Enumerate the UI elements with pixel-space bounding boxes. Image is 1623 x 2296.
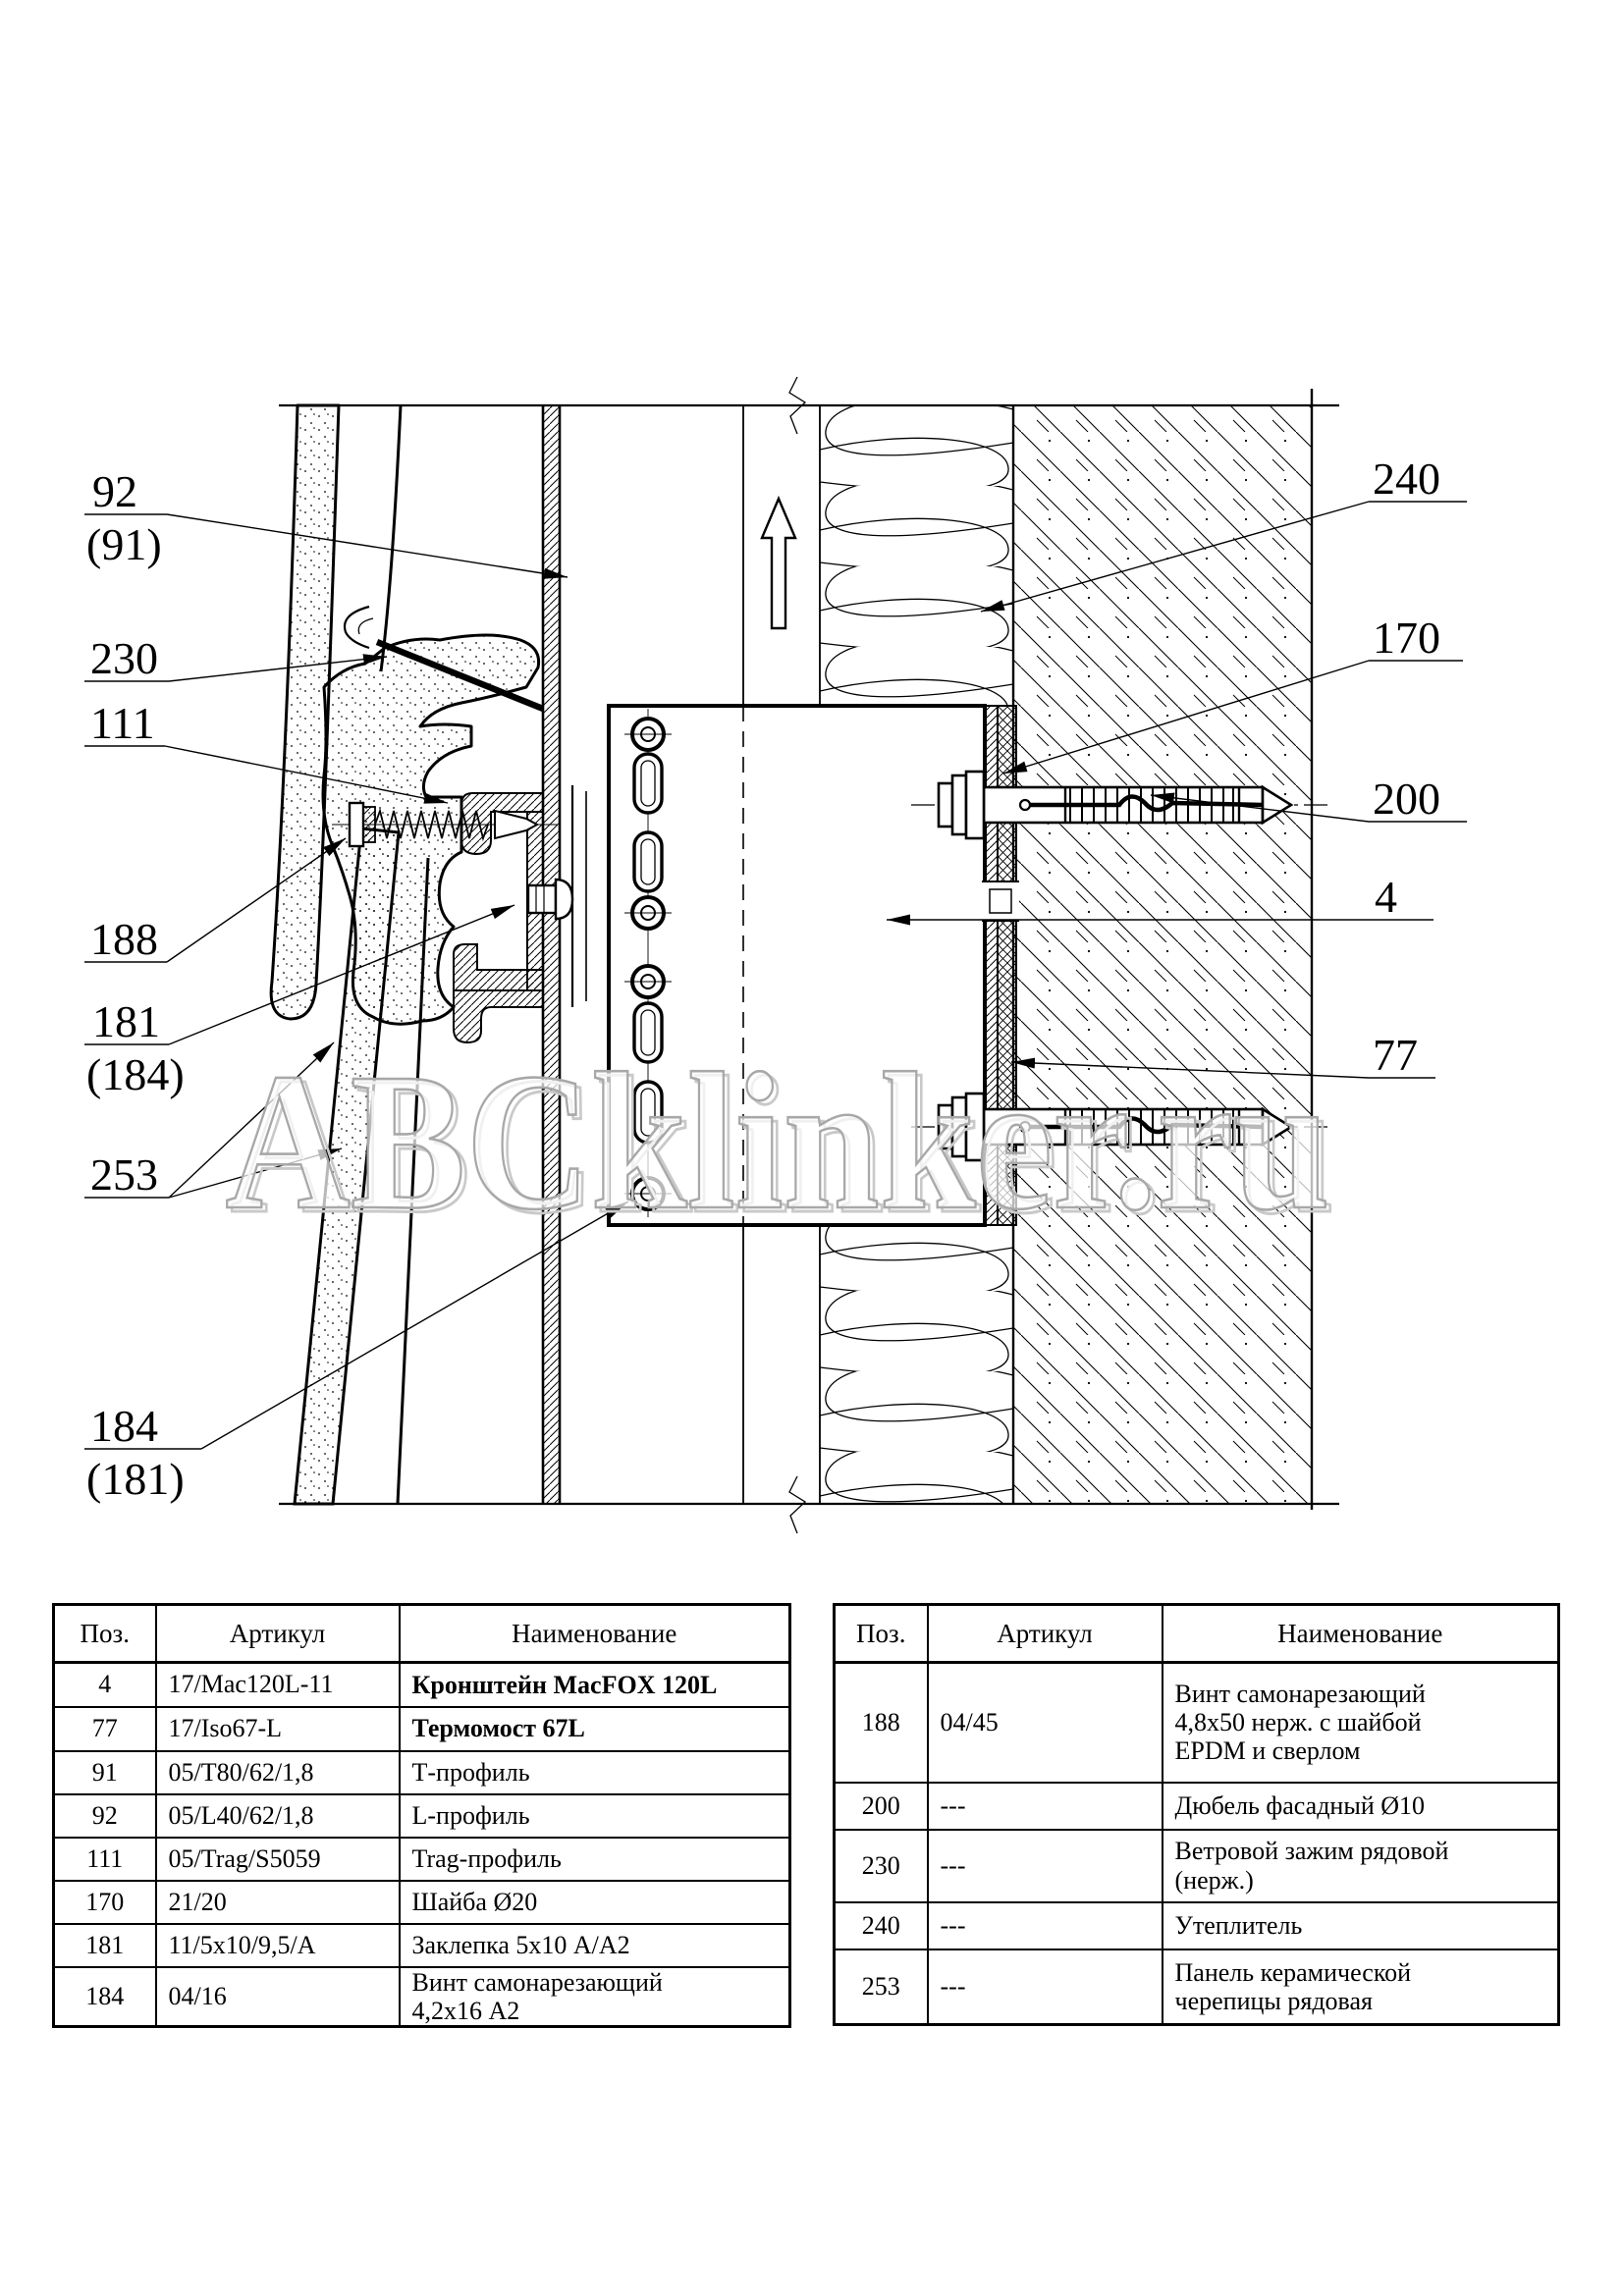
callout-91: (91)	[86, 519, 162, 569]
table-row: 200 --- Дюбель фасадный Ø10	[835, 1783, 1559, 1830]
table-header-art: Артикул	[928, 1605, 1163, 1663]
cell-pos: 181	[54, 1924, 156, 1967]
cell-name: L-профиль	[400, 1794, 790, 1838]
callout-184: 184	[90, 1401, 158, 1451]
drawing-sheet: 92 (91) 230 111 188 181 (184) 253 184 (1…	[0, 0, 1623, 2296]
cell-art: ---	[928, 1783, 1163, 1830]
parts-table-left: Поз. Артикул Наименование 4 17/Mac120L-1…	[52, 1603, 791, 2028]
cell-art: 11/5x10/9,5/A	[156, 1924, 400, 1967]
cell-pos: 184	[54, 1967, 156, 2027]
cell-name: Дюбель фасадный Ø10	[1163, 1783, 1559, 1830]
table-header-name: Наименование	[1163, 1605, 1559, 1663]
cell-name: Утеплитель	[1163, 1902, 1559, 1949]
callout-92: 92	[92, 466, 137, 516]
callout-111: 111	[90, 698, 155, 748]
cell-pos: 253	[835, 1949, 928, 2025]
table-row: 4 17/Mac120L-11 Кронштейн MacFOX 120L	[54, 1663, 790, 1707]
cell-pos: 91	[54, 1751, 156, 1794]
cell-pos: 92	[54, 1794, 156, 1838]
cell-art: 05/Trag/S5059	[156, 1838, 400, 1881]
cell-pos: 188	[835, 1663, 928, 1783]
table-row: 184 04/16 Винт самонарезающий 4,2x16 А2	[54, 1967, 790, 2027]
cell-art: ---	[928, 1830, 1163, 1902]
cell-art: 17/Iso67-L	[156, 1707, 400, 1751]
cell-name: Кронштейн MacFOX 120L	[400, 1663, 790, 1707]
cell-art: 21/20	[156, 1881, 400, 1924]
cell-name: Винт самонарезающий 4,8x50 нерж. с шайбо…	[1163, 1663, 1559, 1783]
watermark: ABCklinker.ru ABCklinker.ru	[226, 1034, 1335, 1255]
callout-170: 170	[1373, 613, 1440, 663]
table-row: 91 05/T80/62/1,8 Т-профиль	[54, 1751, 790, 1794]
table-row: 111 05/Trag/S5059 Trag-профиль	[54, 1838, 790, 1881]
table-row: 240 --- Утеплитель	[835, 1902, 1559, 1949]
table-row: 77 17/Iso67-L Термомост 67L	[54, 1707, 790, 1751]
watermark-text: ABCklinker.ru	[226, 1034, 1330, 1251]
up-arrow-icon	[762, 499, 795, 628]
table-row: 253 --- Панель керамической черепицы ряд…	[835, 1949, 1559, 2025]
cell-name: Панель керамической черепицы рядовая	[1163, 1949, 1559, 2025]
table-row: 188 04/45 Винт самонарезающий 4,8x50 нер…	[835, 1663, 1559, 1783]
cell-art: ---	[928, 1949, 1163, 2025]
cell-pos: 111	[54, 1838, 156, 1881]
cell-pos: 240	[835, 1902, 928, 1949]
table-header-art: Артикул	[156, 1605, 400, 1663]
cell-pos: 170	[54, 1881, 156, 1924]
callout-77: 77	[1373, 1030, 1418, 1080]
cell-name: Trag-профиль	[400, 1838, 790, 1881]
cell-art: 05/T80/62/1,8	[156, 1751, 400, 1794]
table-header-name: Наименование	[400, 1605, 790, 1663]
cell-pos: 200	[835, 1783, 928, 1830]
cell-name: Шайба Ø20	[400, 1881, 790, 1924]
cell-art: 17/Mac120L-11	[156, 1663, 400, 1707]
callout-181-alt: (181)	[86, 1454, 185, 1504]
cell-art: ---	[928, 1902, 1163, 1949]
cell-art: 04/45	[928, 1663, 1163, 1783]
table-row: 181 11/5x10/9,5/A Заклепка 5x10 А/А2	[54, 1924, 790, 1967]
callout-200: 200	[1373, 774, 1440, 824]
cell-pos: 230	[835, 1830, 928, 1902]
callout-184-alt: (184)	[86, 1049, 185, 1099]
table-header-pos: Поз.	[54, 1605, 156, 1663]
cell-name: Заклепка 5x10 А/А2	[400, 1924, 790, 1967]
cell-pos: 77	[54, 1707, 156, 1751]
t-profile-section	[543, 405, 560, 1504]
table-row: 170 21/20 Шайба Ø20	[54, 1881, 790, 1924]
callout-181: 181	[92, 996, 160, 1046]
parts-table-right: Поз. Артикул Наименование 188 04/45 Винт…	[833, 1603, 1560, 2026]
callout-4: 4	[1375, 872, 1397, 922]
rivet	[528, 880, 572, 919]
cell-name: Термомост 67L	[400, 1707, 790, 1751]
cell-art: 05/L40/62/1,8	[156, 1794, 400, 1838]
callout-240: 240	[1373, 454, 1440, 504]
callout-188: 188	[90, 914, 158, 964]
callout-230: 230	[90, 633, 158, 683]
table-header-pos: Поз.	[835, 1605, 928, 1663]
cell-name: Винт самонарезающий 4,2x16 А2	[400, 1967, 790, 2027]
table-row: 92 05/L40/62/1,8 L-профиль	[54, 1794, 790, 1838]
cell-pos: 4	[54, 1663, 156, 1707]
cell-name: Т-профиль	[400, 1751, 790, 1794]
concrete-wall	[1013, 389, 1312, 1510]
cell-art: 04/16	[156, 1967, 400, 2027]
cell-name: Ветровой зажим рядовой (нерж.)	[1163, 1830, 1559, 1902]
table-row: 230 --- Ветровой зажим рядовой (нерж.)	[835, 1830, 1559, 1902]
callout-253: 253	[90, 1149, 158, 1200]
